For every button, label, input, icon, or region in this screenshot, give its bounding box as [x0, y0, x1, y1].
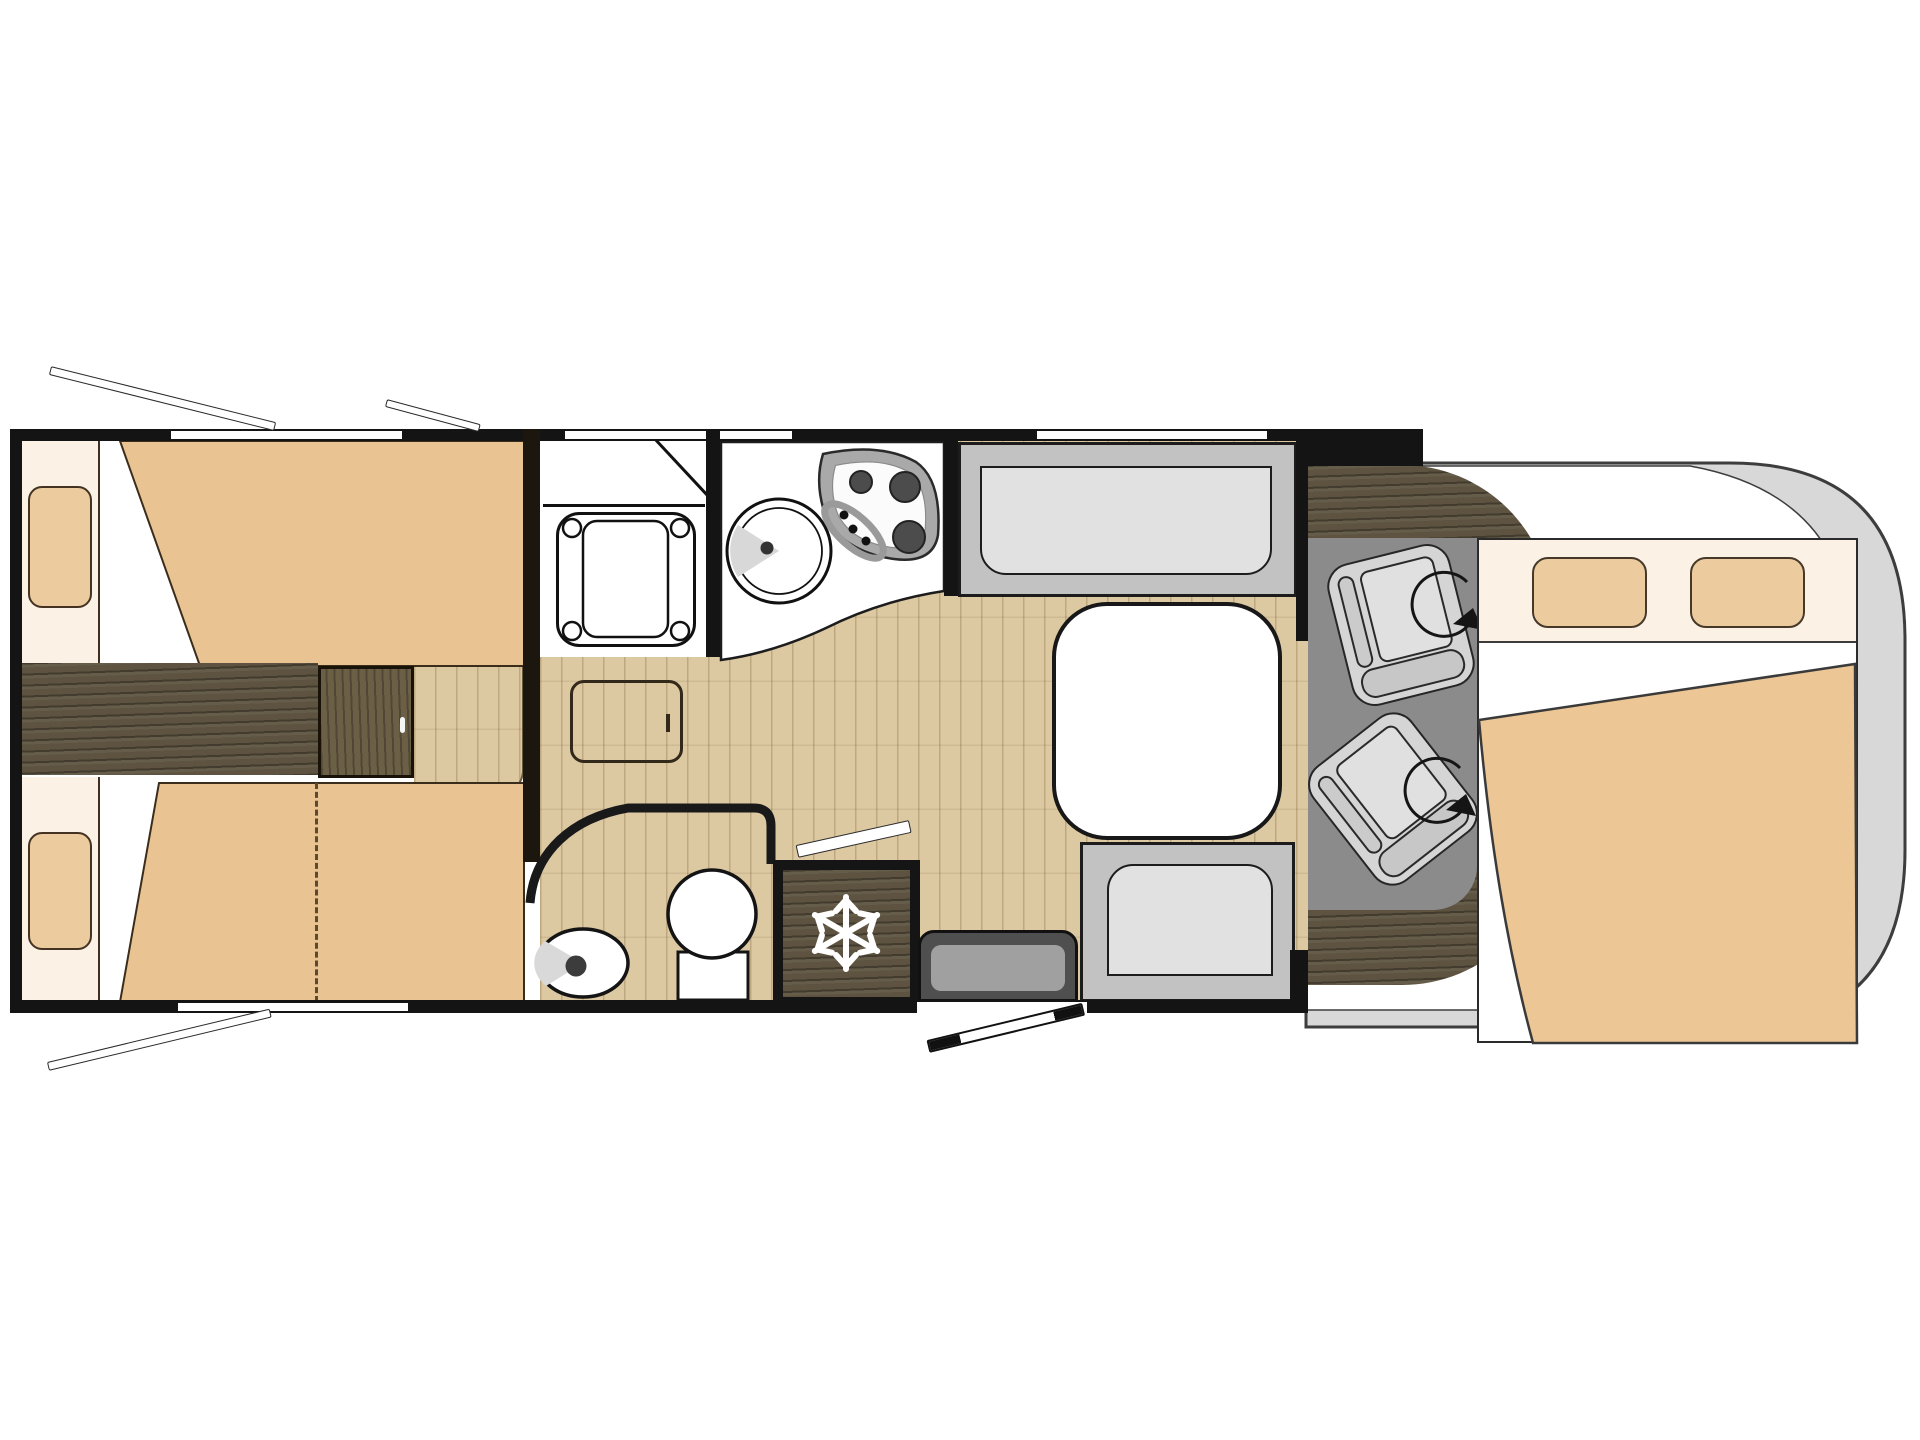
bench-cushion — [980, 466, 1272, 575]
hob-knob — [840, 511, 849, 520]
skylight-icon — [49, 366, 276, 431]
toilet-bowl — [668, 870, 756, 958]
hob-knob — [862, 537, 871, 546]
entry-step-top — [931, 945, 1065, 991]
bed-extension-dashed-line — [315, 783, 318, 1002]
burner-icon — [893, 521, 925, 553]
shower-door-line — [543, 504, 705, 507]
swivel-arrow-icon — [1386, 752, 1478, 844]
fridge — [773, 860, 920, 1007]
skylight-icon — [385, 399, 481, 432]
duvet — [1479, 540, 1860, 1045]
toilet-room — [520, 800, 782, 1008]
burner-icon — [890, 472, 920, 502]
bedroom-step-box — [318, 666, 414, 778]
window-bottom-bedroom — [178, 1003, 408, 1011]
kitchen-block — [720, 441, 946, 663]
window-top-dinette — [1037, 431, 1267, 439]
burner-icon — [850, 471, 872, 493]
bedroom-walkway — [12, 663, 318, 775]
wall-right-stub-bottom — [1290, 950, 1308, 1013]
wall-left-rear — [10, 429, 22, 1013]
overcab-bed — [1477, 538, 1858, 1043]
hob-knob — [849, 525, 858, 534]
hatch-handle — [666, 714, 670, 732]
window-top-bedroom — [171, 431, 402, 439]
wall-bedroom-bathroom — [523, 429, 540, 862]
pillow — [28, 486, 92, 608]
dinette-table — [1052, 602, 1282, 840]
step-handle — [400, 717, 405, 733]
entry-step-cabinet — [918, 930, 1078, 1002]
wall-top-right-corner — [1296, 429, 1423, 466]
pillow — [28, 832, 92, 950]
shower-tray — [556, 512, 696, 647]
skylight-icon — [47, 1009, 272, 1071]
bathroom-floor-hatch — [570, 680, 683, 763]
dinette-bench-long — [958, 442, 1297, 597]
washbasin-drain — [566, 956, 587, 977]
bench-cushion — [1107, 864, 1273, 976]
window-top-kitchen — [565, 431, 792, 439]
wall-right-stub-top — [1296, 429, 1308, 641]
floor-plan-canvas — [0, 0, 1920, 1440]
wall-shower-kitchen — [706, 429, 720, 657]
sink-drain — [761, 542, 774, 555]
wall-kitchen-dinette — [944, 429, 958, 596]
snowflake-icon — [783, 870, 910, 997]
swivel-arrow-icon — [1393, 566, 1485, 658]
dinette-bench-short — [1080, 842, 1295, 1002]
